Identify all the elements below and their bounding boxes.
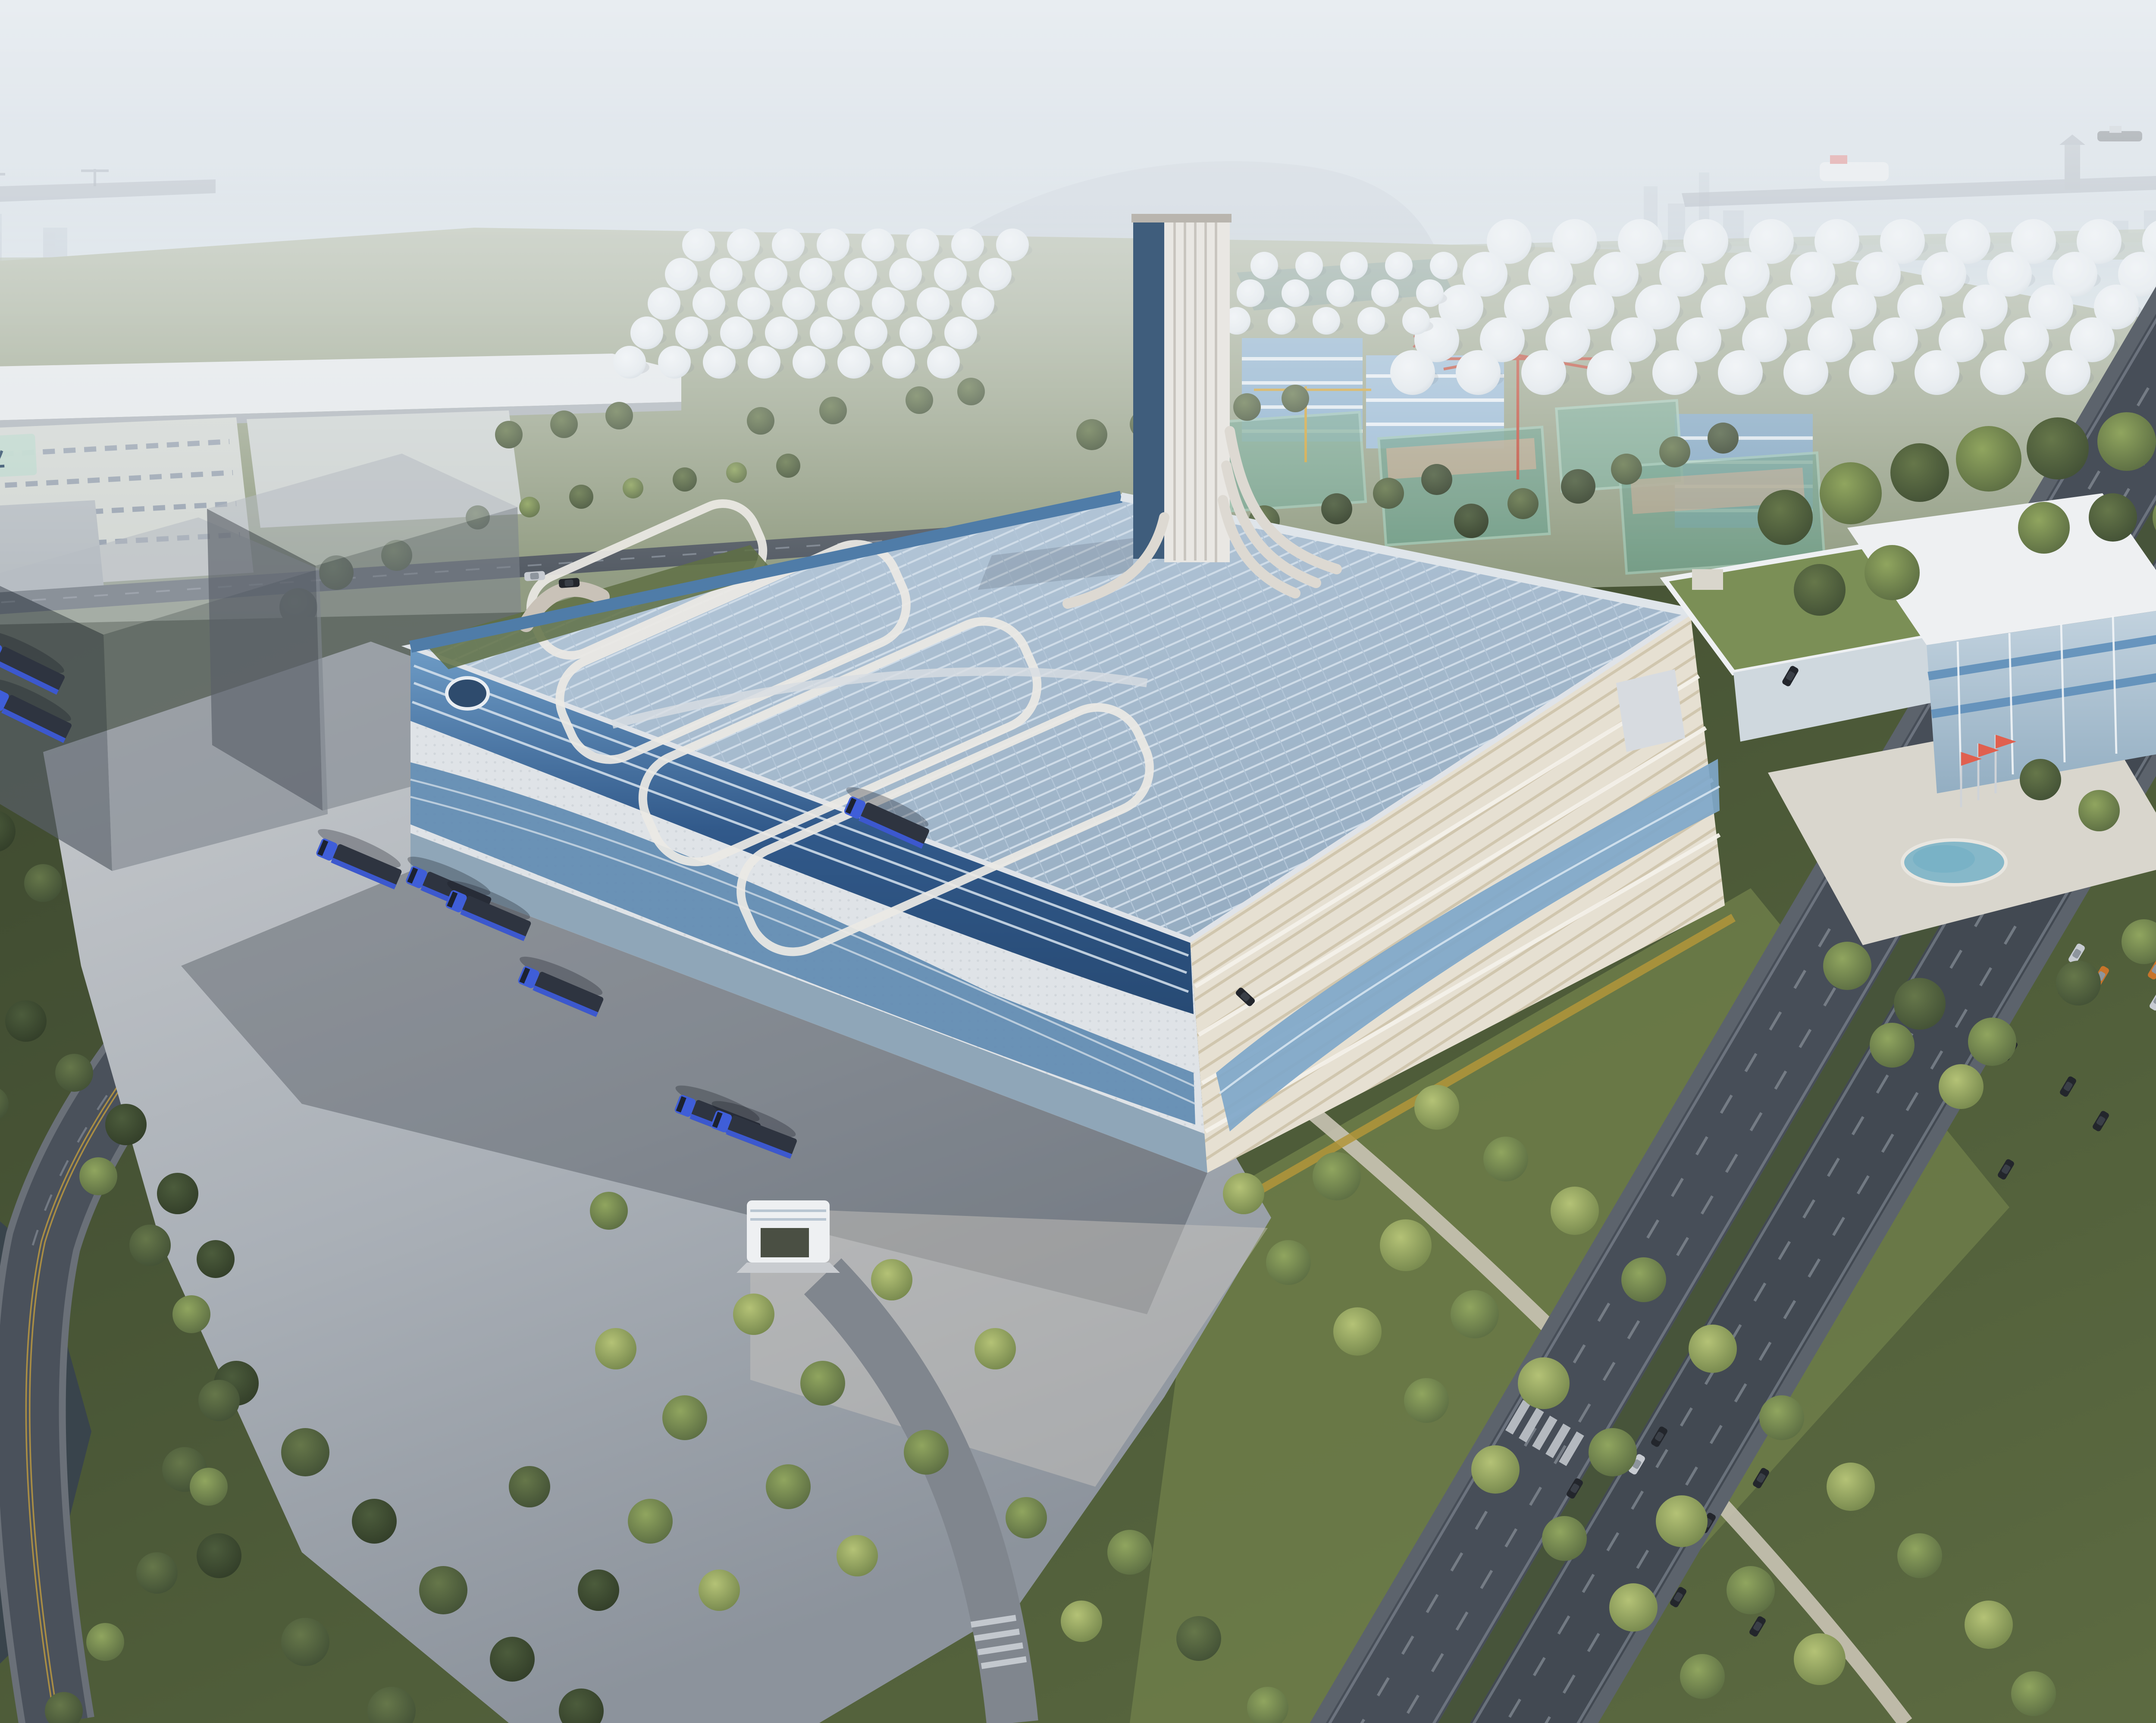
tree xyxy=(509,1466,550,1507)
tree xyxy=(1176,1616,1221,1661)
tree xyxy=(595,1328,636,1369)
tree xyxy=(1968,1018,2016,1066)
tree xyxy=(105,1104,147,1145)
tree xyxy=(1956,426,2021,492)
car-roof xyxy=(564,580,573,587)
car xyxy=(558,578,580,588)
tree xyxy=(1483,1137,1528,1181)
tree xyxy=(157,1173,198,1214)
tree xyxy=(1266,1240,1311,1285)
tree xyxy=(1107,1530,1152,1575)
car xyxy=(524,571,545,581)
chimney-cap xyxy=(1131,214,1232,222)
tree xyxy=(79,1157,117,1195)
tree xyxy=(1404,1378,1449,1423)
tree xyxy=(1823,942,1871,990)
connector-bridge xyxy=(1616,669,1685,752)
tree xyxy=(2020,759,2061,800)
chimney-glass-panel xyxy=(1133,221,1164,559)
tree xyxy=(1820,462,1882,524)
gatehouse xyxy=(736,1200,840,1273)
tree xyxy=(871,1259,912,1300)
tree xyxy=(1897,1533,1942,1578)
tree xyxy=(1794,1633,1846,1685)
tree xyxy=(1061,1601,1102,1642)
tree xyxy=(1689,1325,1737,1373)
pond-inner xyxy=(1913,845,1975,873)
tree xyxy=(766,1464,811,1509)
tree xyxy=(1759,1395,1804,1440)
tree xyxy=(1313,1152,1361,1200)
tree xyxy=(1589,1428,1637,1476)
tree xyxy=(1939,1064,1984,1109)
tree xyxy=(1794,564,1846,616)
tree xyxy=(2097,412,2156,471)
tree xyxy=(198,1380,240,1421)
tree xyxy=(975,1328,1016,1369)
tree xyxy=(2027,417,2089,479)
tree xyxy=(1758,490,1813,545)
tree xyxy=(172,1295,210,1333)
rendering-canvas: 东莞丰业 石化 xyxy=(0,0,2156,1723)
tree xyxy=(1965,1601,2013,1649)
tree xyxy=(1870,1023,1915,1068)
tree xyxy=(800,1361,845,1406)
tree xyxy=(578,1569,619,1611)
tree xyxy=(419,1566,467,1614)
tree xyxy=(1609,1583,1658,1632)
tree xyxy=(1223,1173,1264,1214)
tree xyxy=(281,1618,329,1666)
tree xyxy=(1380,1219,1432,1271)
aerial-rendering: 东莞丰业 石化 xyxy=(0,0,2156,1723)
tree xyxy=(1656,1495,1708,1547)
tree xyxy=(1827,1463,1875,1511)
tree xyxy=(2011,1671,2056,1716)
tree xyxy=(281,1428,329,1476)
tree xyxy=(136,1552,178,1594)
tree xyxy=(662,1395,707,1440)
tree xyxy=(2018,502,2070,554)
tree xyxy=(1471,1445,1520,1494)
tree xyxy=(197,1240,235,1278)
tree xyxy=(590,1192,628,1230)
tree xyxy=(1865,545,1920,600)
tree xyxy=(2089,493,2137,542)
tree xyxy=(1727,1566,1775,1614)
tree xyxy=(490,1637,535,1682)
tree xyxy=(55,1054,93,1092)
tree xyxy=(1890,443,1949,502)
tree xyxy=(1542,1516,1587,1561)
tree xyxy=(1621,1257,1666,1302)
tree xyxy=(1518,1357,1570,1409)
tree xyxy=(1551,1187,1599,1235)
car-roof xyxy=(530,573,539,580)
tree xyxy=(2056,961,2101,1006)
tree xyxy=(129,1225,171,1266)
tree xyxy=(5,1000,47,1042)
porthole-window xyxy=(447,678,488,709)
tree xyxy=(190,1468,228,1506)
tree xyxy=(1006,1497,1047,1538)
tree xyxy=(1451,1290,1499,1338)
tree xyxy=(1680,1654,1725,1699)
tree xyxy=(1333,1307,1382,1356)
tree xyxy=(86,1623,124,1661)
tree xyxy=(197,1533,241,1578)
tree xyxy=(837,1535,878,1576)
tree xyxy=(352,1499,397,1544)
tree xyxy=(2078,790,2120,831)
tree xyxy=(628,1499,673,1544)
tree xyxy=(24,864,62,902)
tree xyxy=(904,1430,949,1475)
tree xyxy=(1894,978,1946,1030)
tree xyxy=(1414,1085,1459,1130)
tree xyxy=(733,1294,774,1335)
tree xyxy=(699,1569,740,1611)
